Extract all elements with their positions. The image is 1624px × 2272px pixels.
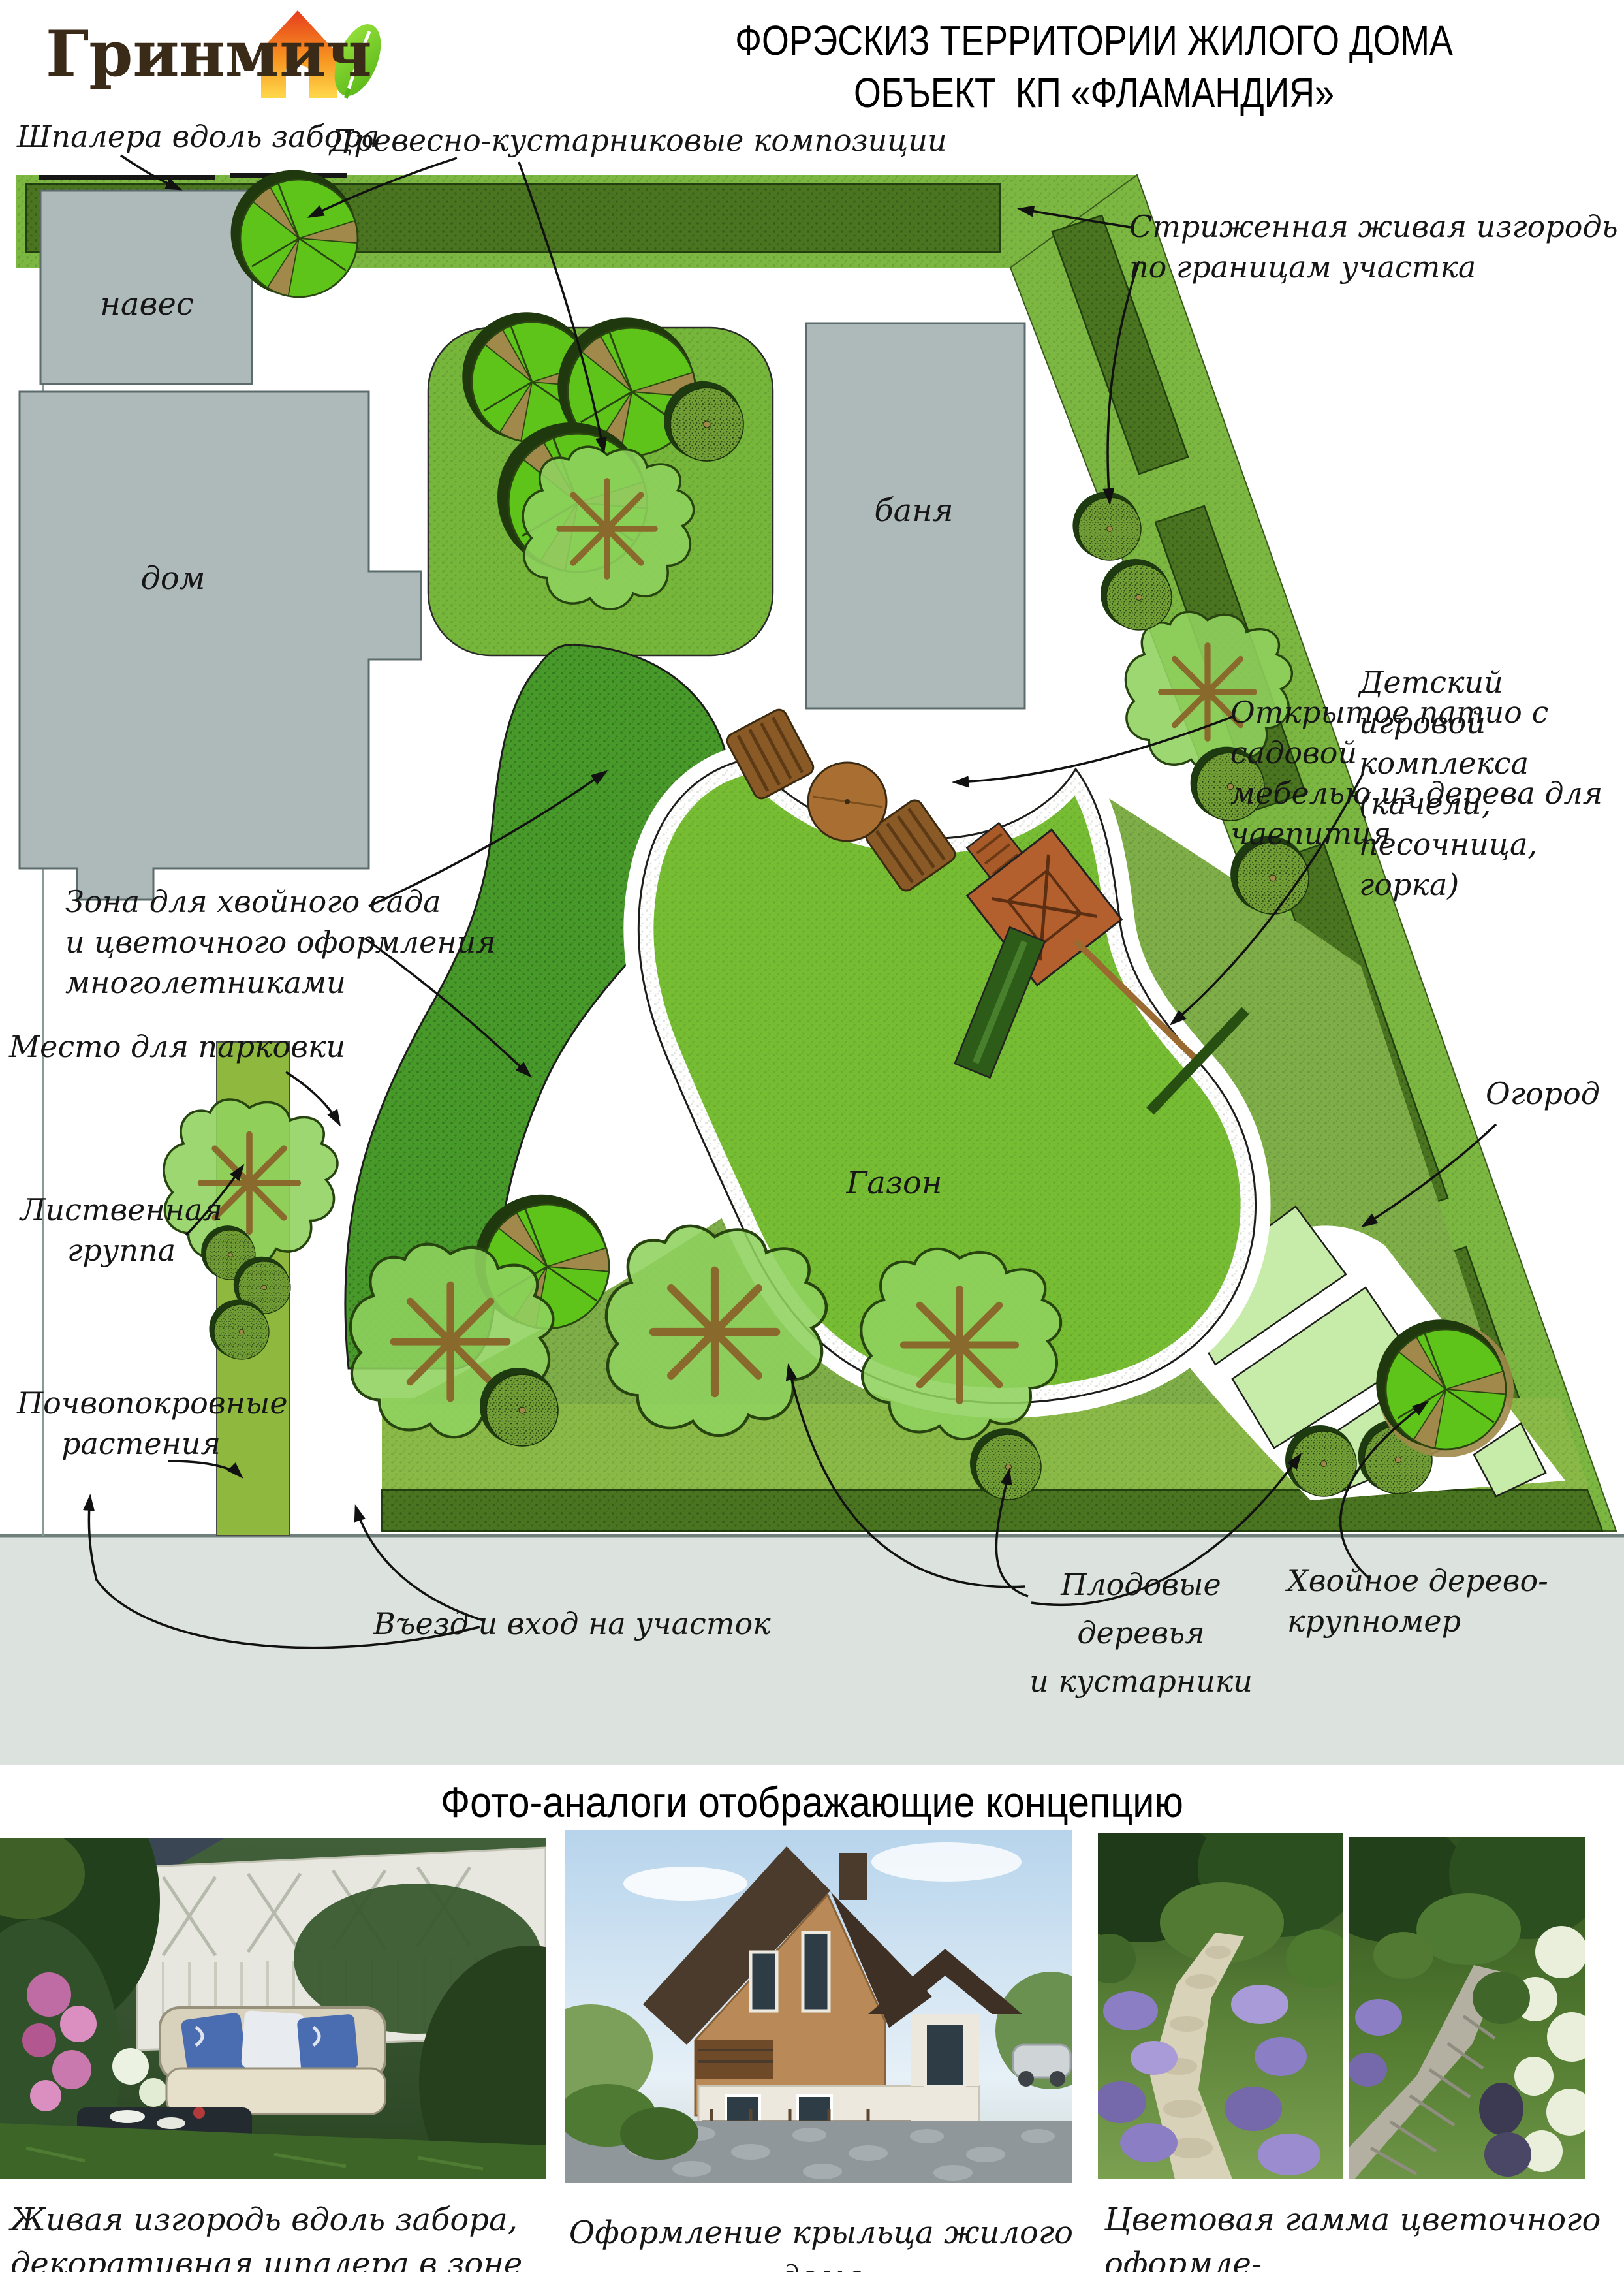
label-compositions: Древесно-кустарниковые композиции	[330, 120, 947, 161]
label-canopy: навес	[78, 286, 215, 323]
page-title: ФОРЭСКИЗ ТЕРРИТОРИИ ЖИЛОГО ДОМА ОБЪЕКТ К…	[564, 14, 1624, 119]
label-conifer-zone: Зона для хвойного сада и цветочного офор…	[65, 881, 496, 1003]
photo-flower-walk	[1312, 1808, 1606, 2179]
label-deciduous-group: Лиственная группа	[4, 1190, 239, 1270]
photo-hedge-and-sofa	[0, 1769, 641, 2220]
house-building	[20, 392, 421, 900]
title-line-2: ОБЪЕКТ КП «ФЛАМАНДИЯ»	[649, 67, 1539, 119]
concept-board: Гринмич ФОРЭСКИЗ ТЕРРИТОРИИ ЖИЛОГО ДОМА …	[0, 0, 1624, 2272]
photo-caption-1: Живая изгородь вдоль забора, декоративна…	[10, 2198, 598, 2272]
label-entrance: Въезд и вход на участок	[373, 1603, 771, 1644]
label-parking: Место для парковки	[9, 1026, 345, 1067]
label-hedge: Стриженная живая изгородь по границам уч…	[1129, 206, 1618, 287]
landscape-plan-graphic	[0, 0, 1624, 2272]
label-groundcover: Почвопокровные растения	[17, 1383, 265, 1464]
logo-text: Гринмич	[46, 17, 372, 91]
photo-lavender-path	[1054, 1800, 1361, 2179]
label-house: дом	[104, 560, 242, 597]
label-bathhouse: баня	[842, 492, 986, 529]
label-trellis: Шпалера вдоль забора	[17, 116, 379, 157]
label-playground: Детский игровой комплекса (качели, песоч…	[1359, 662, 1624, 905]
wicker-sofa	[160, 2008, 385, 2114]
label-fruit-trees: Плодовые деревья и кустарники	[1010, 1560, 1272, 1705]
label-vegetable-garden: Огород	[1486, 1073, 1600, 1114]
photo-caption-2: Оформление крыльца жилого дома	[567, 2211, 1076, 2272]
label-lawn: Газон	[822, 1165, 966, 1201]
photo-caption-3: Цветовая гамма цветочного оформле- ния м…	[1104, 2198, 1624, 2272]
label-large-conifer: Хвойное дерево-крупномер	[1287, 1560, 1624, 1641]
title-line-1: ФОРЭСКИЗ ТЕРРИТОРИИ ЖИЛОГО ДОМА	[649, 14, 1539, 67]
photo-house-porch	[529, 1830, 1106, 2183]
garden-table	[808, 763, 886, 841]
photos-section-title: Фото-аналоги отображающие концепцию	[81, 1777, 1542, 1827]
